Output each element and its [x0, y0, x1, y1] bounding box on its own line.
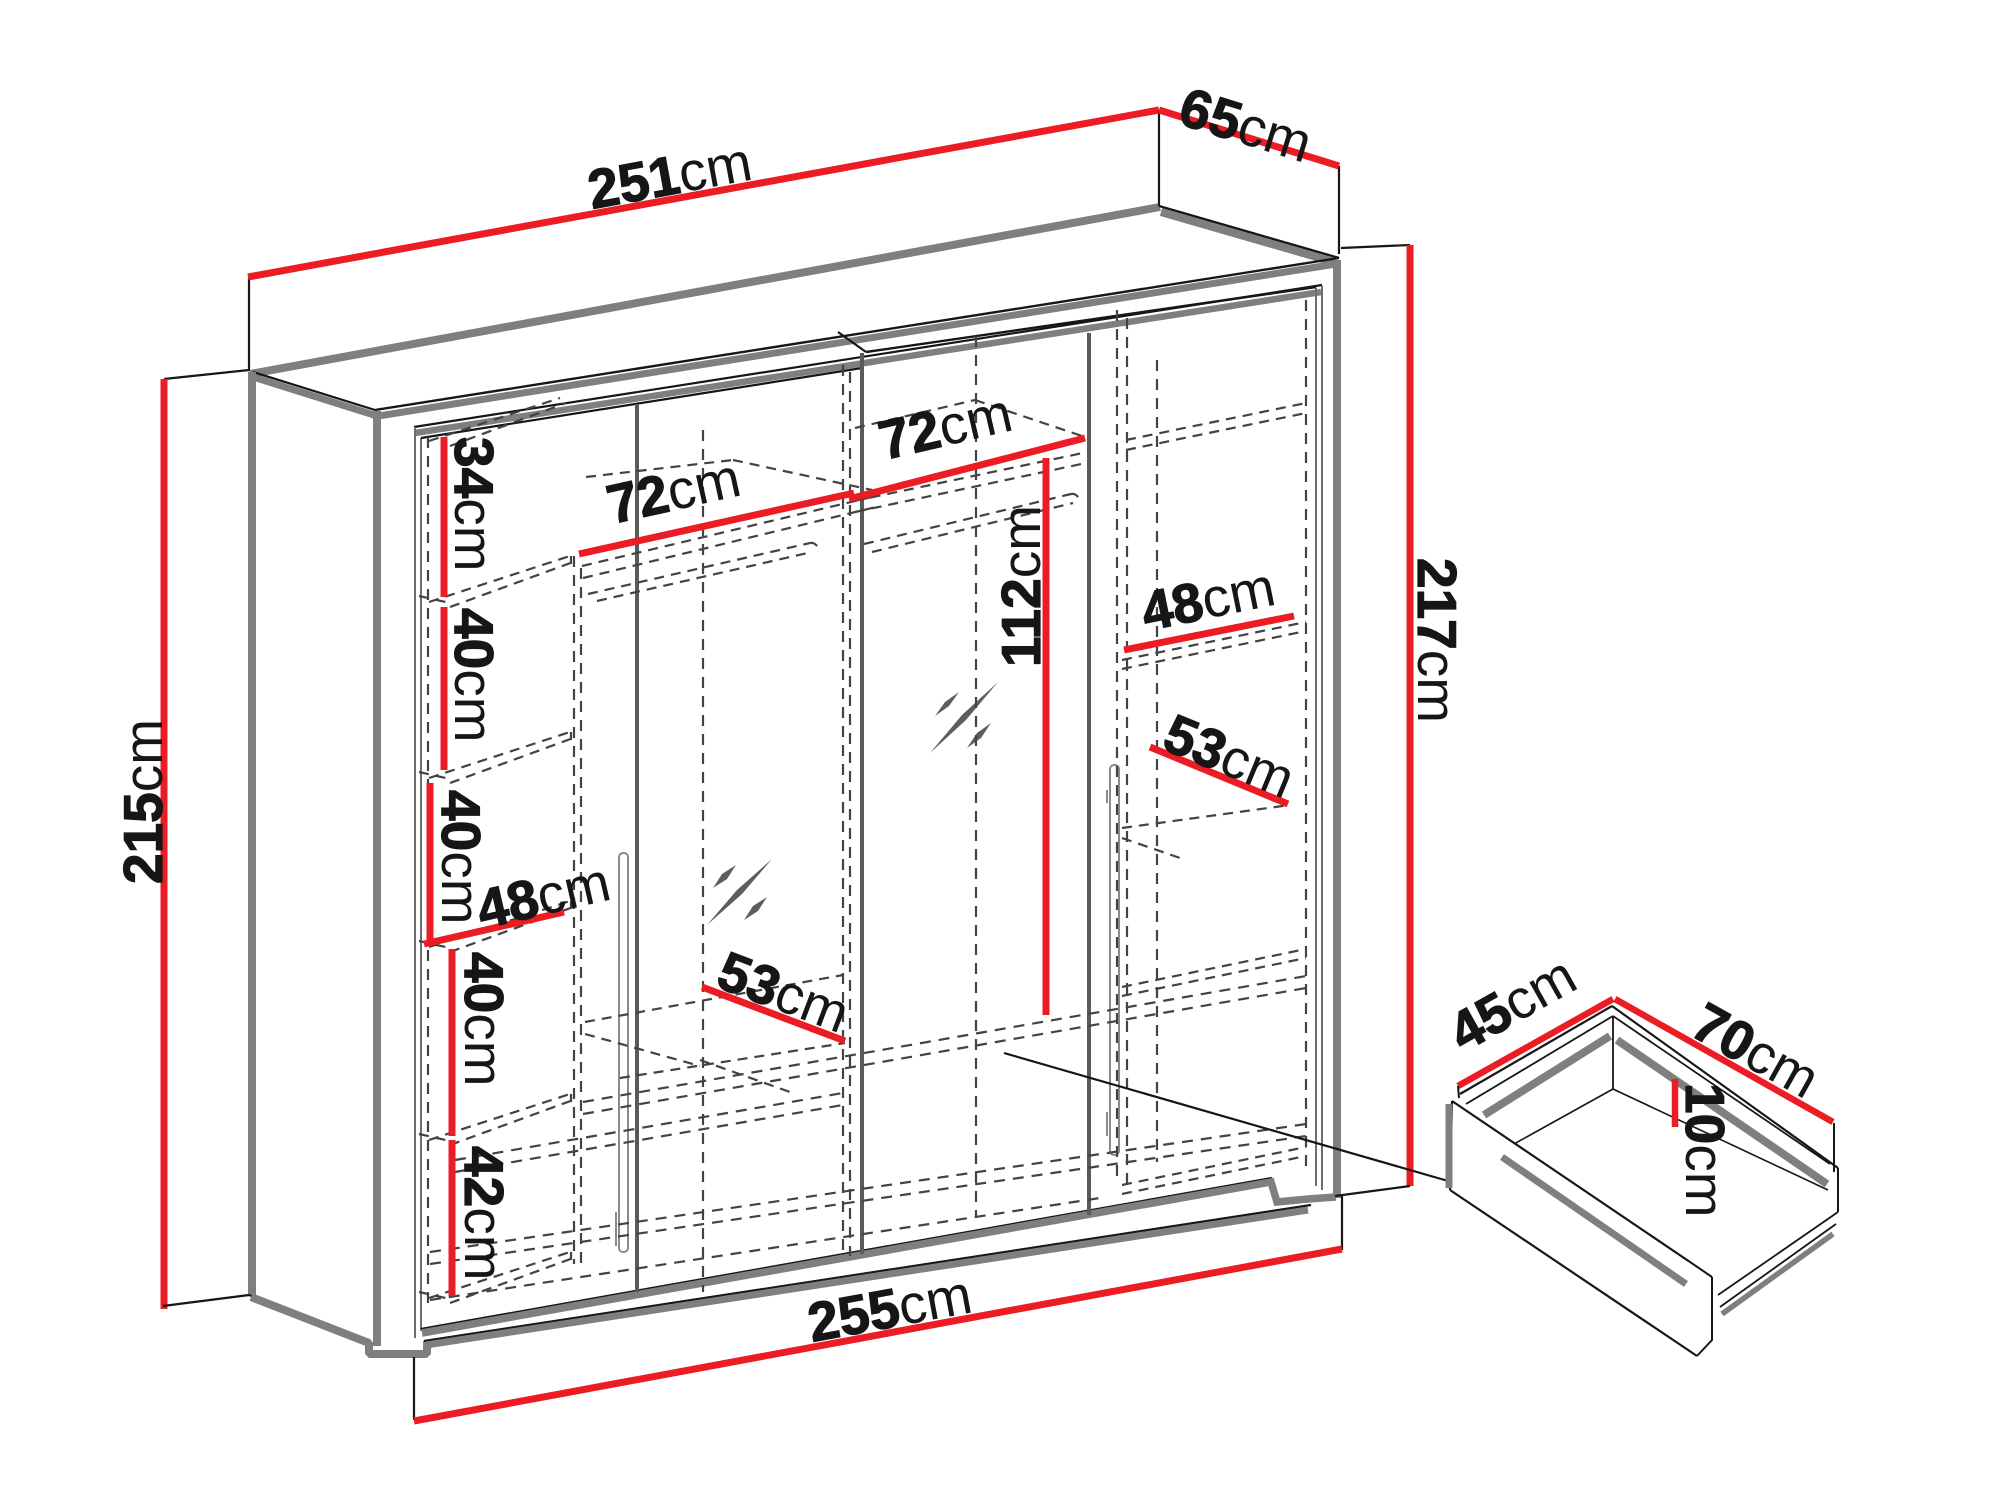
svg-text:40cm: 40cm: [443, 608, 505, 743]
svg-text:34cm: 34cm: [443, 437, 505, 572]
svg-text:10cm: 10cm: [1674, 1083, 1736, 1218]
svg-text:215cm: 215cm: [112, 719, 174, 884]
svg-text:42cm: 42cm: [453, 1146, 515, 1281]
svg-text:40cm: 40cm: [453, 952, 515, 1087]
svg-text:217cm: 217cm: [1406, 558, 1468, 723]
svg-text:112cm: 112cm: [990, 505, 1052, 667]
